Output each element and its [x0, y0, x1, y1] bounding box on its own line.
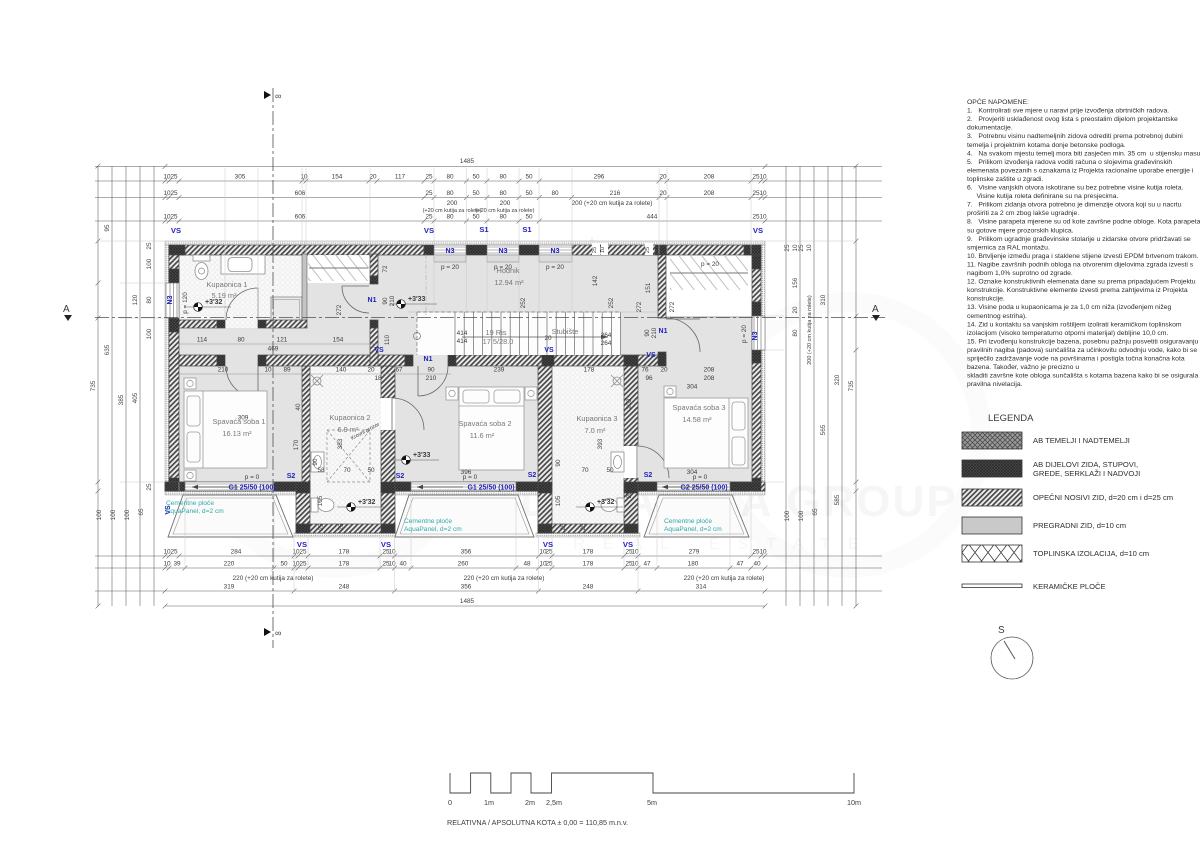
svg-text:635: 635: [104, 344, 111, 355]
svg-text:121: 121: [277, 337, 288, 344]
svg-text:100: 100: [124, 509, 131, 520]
svg-text:2. Provjeriti usklađenost ov: 2. Provjeriti usklađenost ovog lista s p…: [967, 116, 1178, 123]
svg-text:203: 203: [626, 398, 633, 409]
svg-text:50: 50: [280, 560, 288, 567]
svg-text:S2: S2: [396, 473, 405, 480]
svg-text:80: 80: [792, 329, 799, 337]
svg-text:bazena. Također, važno je prec: bazena. Također, važno je precizno u: [967, 364, 1079, 371]
svg-text:p = 20: p = 20: [741, 325, 748, 343]
svg-text:264: 264: [601, 340, 612, 347]
svg-text:Stubište: Stubište: [552, 327, 579, 336]
svg-text:25: 25: [592, 247, 598, 253]
svg-text:178: 178: [583, 560, 594, 567]
svg-text:120: 120: [132, 294, 139, 305]
svg-text:S2: S2: [528, 472, 537, 479]
svg-text:∞: ∞: [275, 628, 281, 638]
svg-text:VS: VS: [753, 226, 763, 235]
svg-text:216: 216: [610, 190, 621, 197]
svg-text:10: 10: [759, 548, 767, 555]
svg-text:50: 50: [525, 173, 533, 180]
svg-text:N1: N1: [659, 328, 668, 335]
svg-text:N1: N1: [424, 356, 433, 363]
svg-text:356: 356: [461, 583, 472, 590]
svg-text:180: 180: [688, 560, 699, 567]
svg-text:178: 178: [584, 367, 595, 374]
svg-text:319: 319: [224, 583, 235, 590]
svg-text:200: 200: [500, 200, 511, 207]
svg-text:90: 90: [644, 329, 651, 337]
svg-text:110: 110: [384, 334, 391, 345]
svg-text:p = 20: p = 20: [701, 261, 719, 268]
svg-text:80: 80: [551, 190, 559, 197]
svg-text:20: 20: [659, 173, 667, 180]
svg-text:AB DIJELOVI ZIDA, STUPOVI,: AB DIJELOVI ZIDA, STUPOVI,: [1033, 460, 1138, 469]
svg-text:735: 735: [90, 380, 97, 391]
svg-text:toplinske zaštite u zgradi.: toplinske zaštite u zgradi.: [967, 176, 1043, 183]
svg-text:272: 272: [636, 301, 643, 312]
svg-text:154: 154: [333, 337, 344, 344]
svg-text:A: A: [872, 304, 879, 315]
svg-text:temelja i projektnim kotama do: temelja i projektnim kotama donje betons…: [967, 142, 1126, 149]
svg-text:156: 156: [792, 277, 799, 288]
svg-text:25: 25: [318, 523, 325, 531]
svg-text:20: 20: [367, 367, 375, 374]
svg-text:220: 220: [224, 560, 235, 567]
svg-text:25: 25: [170, 548, 178, 555]
svg-text:5m: 5m: [647, 798, 657, 807]
svg-text:Cementne ploče: Cementne ploče: [166, 500, 214, 507]
svg-text:+3′33: +3′33: [408, 296, 426, 303]
svg-text:50: 50: [472, 173, 480, 180]
svg-text:1. Kontrolirati sve mjere u: 1. Kontrolirati sve mjere u naravi prije…: [967, 108, 1169, 115]
svg-text:208: 208: [704, 375, 715, 382]
svg-text:p = 0: p = 0: [693, 474, 708, 481]
svg-text:13. Visine poda u kupaonicama: 13. Visine poda u kupaonicama je za 1,0 …: [967, 304, 1171, 311]
svg-text:25: 25: [425, 213, 433, 220]
svg-text:200 (+20 cm kutija za rolete): 200 (+20 cm kutija za rolete): [807, 295, 813, 365]
svg-text:252: 252: [520, 297, 527, 308]
svg-text:25: 25: [299, 548, 307, 555]
svg-text:25: 25: [784, 244, 791, 252]
svg-text:264: 264: [601, 332, 612, 339]
svg-text:16.13 m²: 16.13 m²: [222, 429, 252, 438]
svg-text:100: 100: [96, 509, 103, 520]
svg-text:444: 444: [647, 213, 658, 220]
svg-text:20: 20: [544, 335, 552, 342]
svg-text:spriječilo zadržavanje vode na: spriječilo zadržavanje vode na površinam…: [967, 356, 1185, 363]
svg-text:585: 585: [834, 494, 841, 505]
svg-text:90: 90: [312, 458, 319, 466]
svg-text:Hodnik: Hodnik: [496, 266, 519, 275]
svg-text:15. Pri izvođenju konstrukcije: 15. Pri izvođenju konstrukcije bazena, p…: [967, 338, 1198, 345]
svg-text:25: 25: [170, 190, 178, 197]
svg-text:OPEČNI NOSIVI ZID, d=20 cm i d: OPEČNI NOSIVI ZID, d=20 cm i d=25 cm: [1033, 493, 1173, 502]
svg-text:310: 310: [820, 294, 827, 305]
svg-text:RELATIVNA / APSOLUTNA KOTA ±: RELATIVNA / APSOLUTNA KOTA ± 0,00 = 110,…: [447, 818, 628, 827]
svg-text:p = 120: p = 120: [182, 292, 189, 314]
svg-text:100: 100: [146, 258, 153, 269]
svg-text:70: 70: [581, 467, 589, 474]
svg-text:10: 10: [806, 244, 813, 252]
svg-text:18: 18: [374, 375, 382, 382]
svg-text:178: 178: [339, 560, 350, 567]
svg-text:+3′32: +3′32: [205, 299, 223, 306]
svg-text:VS: VS: [544, 347, 554, 354]
svg-text:2,5m: 2,5m: [546, 798, 562, 807]
svg-text:10: 10: [759, 173, 767, 180]
svg-text:p = 0: p = 0: [463, 474, 478, 481]
svg-text:9. Prilikom ugradnje građevi: 9. Prilikom ugradnje građevinske stolari…: [967, 236, 1191, 243]
svg-text:178: 178: [339, 548, 350, 555]
svg-text:50: 50: [525, 190, 533, 197]
svg-text:7.0 m²: 7.0 m²: [585, 426, 606, 435]
svg-text:VS: VS: [297, 540, 307, 549]
svg-text:25: 25: [425, 190, 433, 197]
svg-text:14.58 m²: 14.58 m²: [682, 415, 712, 424]
svg-text:Spavaća soba 2: Spavaća soba 2: [458, 419, 511, 428]
svg-text:VS: VS: [646, 352, 656, 359]
svg-text:25: 25: [170, 213, 178, 220]
svg-text:58: 58: [317, 467, 325, 474]
svg-text:TOPLINSKA IZOLACIJA, d=10 cm: TOPLINSKA IZOLACIJA, d=10 cm: [1033, 549, 1149, 558]
svg-text:0: 0: [448, 798, 452, 807]
svg-text:11.6 m²: 11.6 m²: [470, 431, 495, 440]
svg-text:KERAMIČKE PLOČE: KERAMIČKE PLOČE: [1033, 582, 1106, 591]
svg-text:10: 10: [388, 548, 396, 555]
svg-text:170: 170: [293, 439, 300, 450]
svg-text:105: 105: [317, 495, 324, 506]
svg-text:272: 272: [669, 301, 676, 312]
svg-text:dokumentacije.: dokumentacije.: [967, 125, 1013, 132]
svg-text:p = 20: p = 20: [546, 264, 564, 271]
svg-text:50: 50: [367, 467, 375, 474]
svg-text:96: 96: [645, 375, 653, 382]
svg-text:383: 383: [337, 438, 344, 449]
svg-text:80: 80: [146, 296, 153, 304]
svg-text:S1: S1: [479, 225, 489, 234]
svg-text:50: 50: [606, 467, 614, 474]
svg-text:200 (+20 cm kutija za rolete): 200 (+20 cm kutija za rolete): [572, 200, 653, 207]
svg-text:elemenata povezanih s oznakama: elemenata povezanih s oznakama iz Projek…: [967, 167, 1194, 174]
svg-text:208: 208: [704, 367, 715, 374]
svg-text:p = 0: p = 0: [245, 474, 260, 481]
svg-text:67: 67: [395, 367, 403, 374]
svg-text:VS: VS: [381, 540, 391, 549]
svg-text:AB TEMELJI I NADTEMELJI: AB TEMELJI I NADTEMELJI: [1033, 436, 1130, 445]
svg-text:20: 20: [369, 173, 377, 180]
svg-text:80: 80: [237, 337, 245, 344]
svg-text:40: 40: [753, 560, 761, 567]
svg-text:6. Visine vanjskih otvora is: 6. Visine vanjskih otvora iskotirane su …: [967, 185, 1183, 192]
svg-text:50: 50: [472, 190, 480, 197]
svg-text:7. Prilikom zidanja otvora p: 7. Prilikom zidanja otvora potrebno je d…: [967, 202, 1182, 209]
svg-text:proširiti za 2 cm zbog lakše u: proširiti za 2 cm zbog lakše ugradnje.: [967, 210, 1079, 217]
svg-text:279: 279: [689, 548, 700, 555]
svg-text:90: 90: [555, 459, 562, 467]
svg-text:25: 25: [299, 560, 307, 567]
svg-text:210: 210: [218, 367, 229, 374]
svg-text:N3: N3: [551, 248, 560, 255]
svg-text:154: 154: [332, 173, 343, 180]
svg-text:47: 47: [736, 560, 744, 567]
svg-text:272: 272: [336, 304, 343, 315]
svg-text:80: 80: [446, 173, 454, 180]
svg-text:100: 100: [110, 509, 117, 520]
svg-text:304: 304: [687, 384, 698, 391]
svg-text:117: 117: [395, 173, 406, 180]
svg-text:210: 210: [426, 375, 437, 382]
svg-text:393: 393: [597, 438, 604, 449]
svg-text:50: 50: [472, 213, 480, 220]
svg-text:25: 25: [798, 244, 805, 252]
svg-text:25: 25: [338, 523, 345, 531]
svg-text:65: 65: [138, 508, 145, 516]
svg-text:4. Na svakom mjestu temelj m: 4. Na svakom mjestu temelj mora biti zas…: [967, 150, 1200, 157]
svg-text:210: 210: [389, 295, 396, 306]
svg-text:10: 10: [264, 367, 272, 374]
svg-text:VS: VS: [374, 347, 384, 354]
svg-text:72: 72: [382, 265, 389, 273]
svg-text:konstrukcije. Konstruktivne el: konstrukcije. Konstruktivne elemente izv…: [967, 287, 1188, 294]
svg-text:VS: VS: [623, 540, 633, 549]
svg-text:305: 305: [235, 173, 246, 180]
svg-text:1485: 1485: [460, 598, 475, 605]
svg-text:20: 20: [660, 367, 668, 374]
svg-text:20: 20: [659, 190, 667, 197]
svg-text:314: 314: [696, 583, 707, 590]
svg-text:208: 208: [704, 173, 715, 180]
svg-text:N3: N3: [499, 248, 508, 255]
svg-text:10: 10: [163, 560, 171, 567]
svg-text:25: 25: [560, 523, 567, 531]
svg-text:Spavaća soba 3: Spavaća soba 3: [672, 403, 725, 412]
svg-text:151: 151: [645, 282, 652, 293]
svg-text:40: 40: [399, 560, 407, 567]
svg-text:90: 90: [382, 297, 389, 305]
svg-text:735: 735: [848, 380, 855, 391]
svg-text:200: 200: [447, 200, 458, 207]
svg-text:47: 47: [643, 560, 651, 567]
svg-text:N3: N3: [752, 331, 759, 340]
svg-text:10m: 10m: [847, 798, 861, 807]
svg-text:10: 10: [300, 173, 308, 180]
svg-text:208: 208: [704, 190, 715, 197]
svg-text:G1 25/50 (100): G1 25/50 (100): [467, 485, 514, 492]
svg-text:414: 414: [457, 330, 468, 337]
svg-text:Kupaonica 1: Kupaonica 1: [206, 280, 247, 289]
svg-text:105: 105: [555, 495, 562, 506]
svg-text:405: 405: [132, 392, 139, 403]
svg-text:260: 260: [458, 560, 469, 567]
svg-text:248: 248: [339, 583, 350, 590]
svg-text:25: 25: [580, 523, 587, 531]
svg-text:OPĆE NAPOMENE:: OPĆE NAPOMENE:: [967, 97, 1029, 106]
svg-text:+3′32: +3′32: [597, 499, 615, 506]
svg-text:GREDE, SERKLAŽI I NADVOJI: GREDE, SERKLAŽI I NADVOJI: [1033, 469, 1140, 478]
svg-text:25: 25: [146, 483, 153, 491]
svg-text:606: 606: [295, 213, 306, 220]
svg-text:95: 95: [104, 224, 111, 232]
svg-text:5. Prilikom izvođenja radova: 5. Prilikom izvođenja radova voditi raču…: [967, 159, 1172, 166]
svg-text:N3: N3: [167, 295, 174, 304]
svg-text:cementnog estriha).: cementnog estriha).: [967, 313, 1027, 320]
svg-text:20: 20: [792, 306, 799, 314]
svg-text:80: 80: [499, 213, 507, 220]
svg-text:356: 356: [461, 548, 472, 555]
svg-text:25: 25: [645, 247, 651, 253]
svg-text:AquaPanel, d=2 cm: AquaPanel, d=2 cm: [404, 526, 462, 533]
svg-text:pravilnih nagiba (padova) sunč: pravilnih nagiba (padova) sunčališta za …: [967, 347, 1197, 354]
svg-text:VS: VS: [543, 540, 553, 549]
svg-text:∞: ∞: [275, 91, 281, 101]
svg-text:S1: S1: [522, 225, 532, 234]
svg-text:80: 80: [499, 173, 507, 180]
svg-text:su gotove mjere prozorskih klu: su gotove mjere prozorskih klupica.: [967, 227, 1074, 234]
svg-text:VS: VS: [171, 226, 181, 235]
svg-text:A: A: [63, 304, 70, 315]
svg-text:203: 203: [626, 487, 633, 498]
svg-text:90: 90: [427, 367, 435, 374]
svg-text:252: 252: [608, 297, 615, 308]
svg-text:Kupaonica 2: Kupaonica 2: [329, 413, 370, 422]
svg-text:76: 76: [641, 367, 649, 374]
svg-text:REAL ESTATE: REAL ESTATE: [573, 536, 877, 553]
svg-text:142: 142: [592, 275, 599, 286]
svg-text:+3′32: +3′32: [358, 499, 376, 506]
svg-text:80: 80: [446, 213, 454, 220]
svg-text:48: 48: [523, 560, 531, 567]
svg-text:80: 80: [499, 190, 507, 197]
svg-text:39: 39: [173, 560, 181, 567]
svg-text:G1 25/50 (100): G1 25/50 (100): [228, 485, 275, 492]
svg-text:Kupaonica 3: Kupaonica 3: [576, 414, 617, 423]
svg-text:p = 20: p = 20: [441, 264, 459, 271]
svg-text:skladiti završne kote obloga s: skladiti završne kote obloga sunčališta …: [967, 373, 1198, 380]
svg-text:100: 100: [798, 510, 805, 521]
svg-text:80: 80: [446, 190, 454, 197]
svg-text:565: 565: [820, 424, 827, 435]
svg-text:8. Visine parapeta mjerene s: 8. Visine parapeta mjerene su od kote za…: [967, 219, 1200, 226]
svg-text:S2: S2: [644, 472, 653, 479]
svg-text:25: 25: [425, 173, 433, 180]
svg-text:239: 239: [494, 367, 505, 374]
svg-text:14. Zid u kontaktu sa vanjskim: 14. Zid u kontaktu sa vanjskim roštiljem…: [967, 321, 1182, 328]
svg-text:1485: 1485: [460, 158, 475, 165]
svg-text:G2 25/50 (100): G2 25/50 (100): [680, 485, 727, 492]
svg-text:210: 210: [651, 327, 658, 338]
svg-text:284: 284: [231, 548, 242, 555]
svg-text:178: 178: [583, 548, 594, 555]
svg-text:50: 50: [525, 213, 533, 220]
svg-text:100: 100: [146, 328, 153, 339]
svg-text:70: 70: [343, 467, 351, 474]
svg-text:N3: N3: [446, 248, 455, 255]
svg-text:10: 10: [759, 213, 767, 220]
svg-text:25: 25: [170, 173, 178, 180]
svg-text:65: 65: [812, 508, 819, 516]
svg-text:385: 385: [118, 394, 125, 405]
svg-text:296: 296: [594, 173, 605, 180]
svg-text:220 (+20 cm kutija za rolete): 220 (+20 cm kutija za rolete): [684, 575, 765, 582]
svg-text:pravilna nivelacija.: pravilna nivelacija.: [967, 381, 1023, 388]
svg-text:AquaPanel, d=2 cm: AquaPanel, d=2 cm: [664, 526, 722, 533]
svg-text:10: 10: [388, 560, 396, 567]
svg-text:1m: 1m: [484, 798, 494, 807]
svg-text:89: 89: [283, 367, 291, 374]
svg-text:3. Potrebnu visinu nadtemelj: 3. Potrebnu visinu nadtemeljnih zidova o…: [967, 133, 1183, 140]
svg-text:Cementne ploče: Cementne ploče: [664, 518, 712, 525]
svg-text:10: 10: [759, 190, 767, 197]
svg-text:2m: 2m: [525, 798, 535, 807]
svg-text:S: S: [998, 625, 1005, 636]
svg-text:10: 10: [600, 247, 606, 253]
svg-text:114: 114: [197, 337, 208, 344]
svg-text:10. Brtvljenje između praga i: 10. Brtvljenje između praga i staklene s…: [967, 253, 1199, 260]
svg-text:12.94 m²: 12.94 m²: [494, 278, 524, 287]
svg-text:248: 248: [583, 583, 594, 590]
svg-text:Spavaća soba 1: Spavaća soba 1: [212, 417, 265, 426]
svg-text:nagibom 1,0% suprotno od zgrad: nagibom 1,0% suprotno od zgrade.: [967, 270, 1073, 277]
svg-text:S2: S2: [287, 473, 296, 480]
svg-text:25: 25: [146, 242, 153, 250]
svg-text:100: 100: [784, 510, 791, 521]
svg-text:140: 140: [336, 367, 347, 374]
svg-text:smjernica za RAL montažu.: smjernica za RAL montažu.: [967, 244, 1050, 251]
svg-text:220 (+20 cm kutija za rolete): 220 (+20 cm kutija za rolete): [464, 575, 545, 582]
svg-text:VS: VS: [424, 226, 434, 235]
svg-text:11. Nagibe završnih podnih obl: 11. Nagibe završnih podnih obloga na otv…: [967, 261, 1194, 268]
svg-text:40: 40: [295, 403, 302, 411]
svg-text:N1: N1: [368, 297, 377, 304]
svg-text:+3′33: +3′33: [413, 452, 431, 459]
svg-text:606: 606: [295, 190, 306, 197]
svg-text:414: 414: [457, 338, 468, 345]
svg-text:LEGENDA: LEGENDA: [988, 413, 1034, 424]
svg-text:19 Ris: 19 Ris: [486, 328, 507, 337]
svg-text:izolacijom (visoko temperaturn: izolacijom (visoko temperaturno otporni …: [967, 330, 1168, 337]
svg-text:Visine kutija roleta definiran: Visine kutija roleta definirane su na pr…: [967, 193, 1118, 200]
svg-text:AquaPanel, d=2 cm: AquaPanel, d=2 cm: [166, 508, 224, 515]
svg-text:konstrukcije.: konstrukcije.: [967, 296, 1005, 303]
svg-text:Cementne ploče: Cementne ploče: [404, 518, 452, 525]
svg-text:PREGRADNI ZID, d=10 cm: PREGRADNI ZID, d=10 cm: [1033, 521, 1126, 530]
svg-text:17.5/28.0: 17.5/28.0: [483, 337, 514, 346]
svg-text:320: 320: [834, 374, 841, 385]
svg-text:12. Oznake konstruktivnih elem: 12. Oznake konstruktivnih elemenata dane…: [967, 279, 1196, 286]
